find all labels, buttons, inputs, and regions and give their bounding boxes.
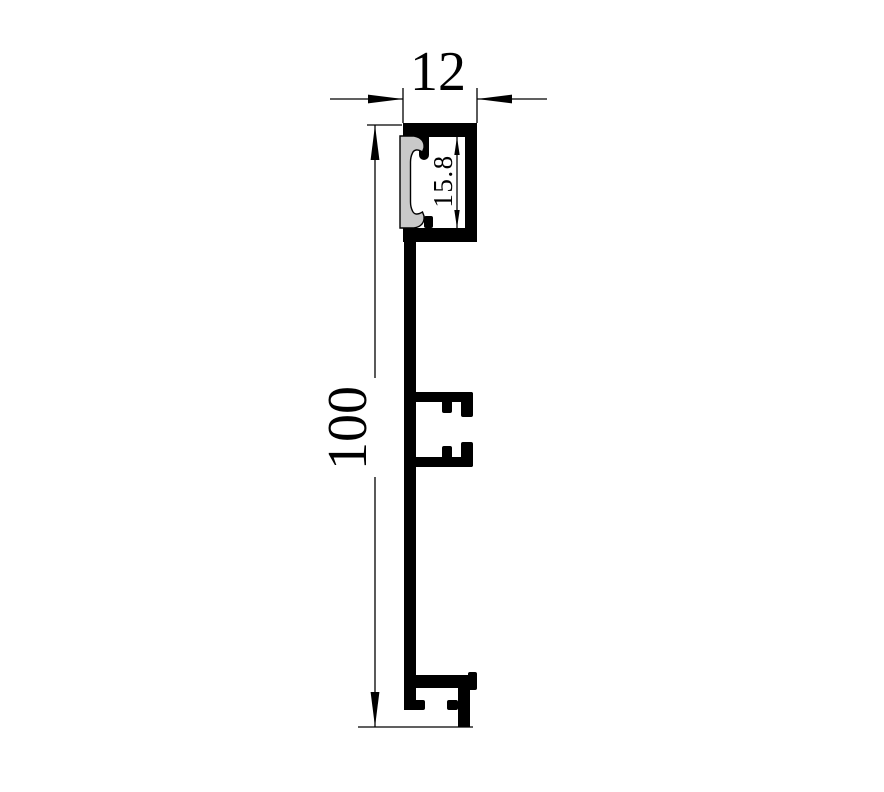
channel-arrow-bottom [454,210,459,228]
width-dimension-value: 12 [410,41,466,103]
channel-right-wall [465,123,477,242]
diffuser-cover [400,136,424,228]
channel-arrow-top [454,137,459,155]
height-arrow-top [371,125,380,160]
width-arrow-right [477,95,512,104]
foot-right-leg [458,688,470,727]
clip-top-right-leg [461,392,473,417]
clip-bottom-right-leg [461,442,473,467]
height-dimension-value: 100 [317,386,379,470]
foot-bar [414,675,477,688]
clip-top-tab [442,399,452,413]
width-arrow-left [368,95,403,104]
channel-bottom-lip [424,216,433,228]
foot-right-hook [447,700,458,710]
channel-bottom-wall [403,228,477,242]
height-arrow-bottom [371,692,380,727]
foot-web-hook [414,700,425,710]
channel-dimension-value: 15.8 [428,154,458,207]
drawing-canvas: 12 100 15.8 [0,0,884,792]
clip-bottom-tab [442,446,452,459]
main-web [404,240,416,710]
profile-technical-drawing: 12 100 15.8 [0,0,884,792]
foot-bar-end-cap [468,672,477,690]
